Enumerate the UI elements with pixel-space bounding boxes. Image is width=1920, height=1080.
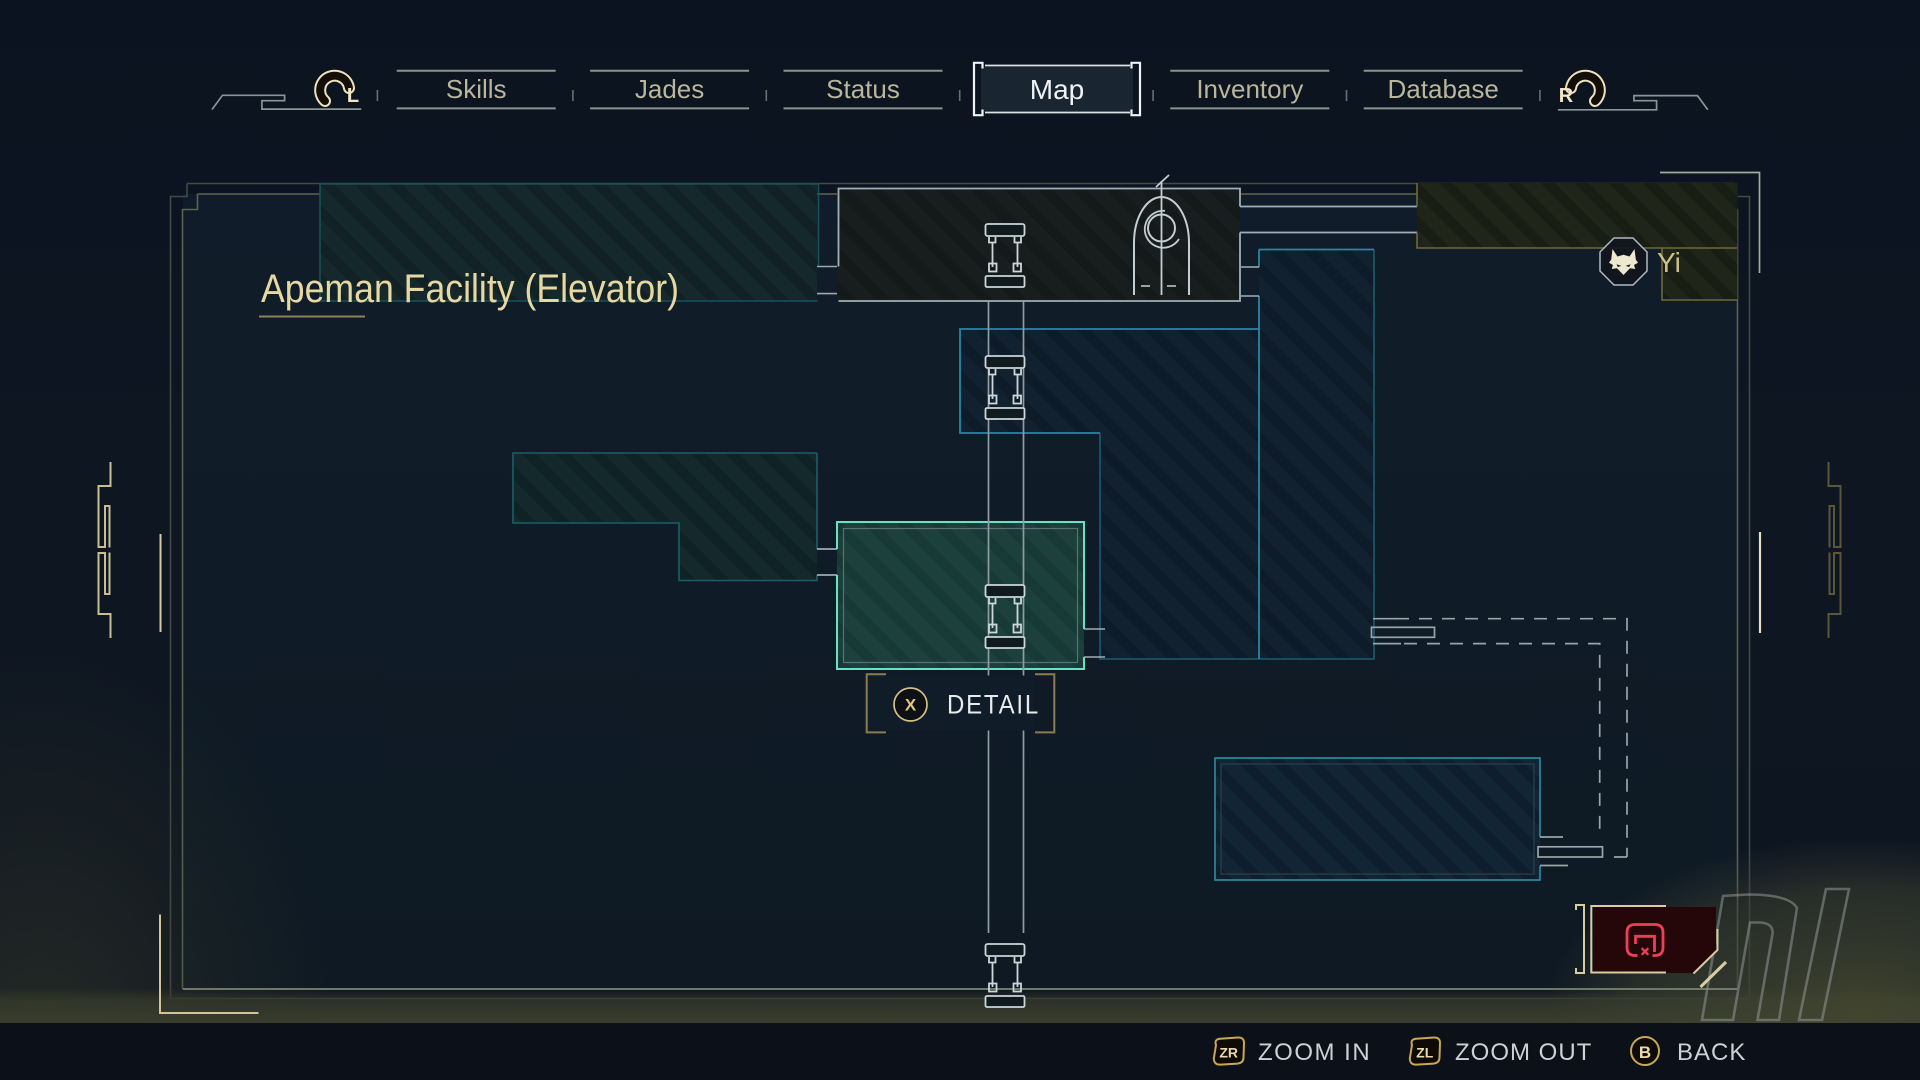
svg-text:R: R: [1559, 85, 1574, 107]
svg-text:DETAIL: DETAIL: [947, 690, 1040, 720]
svg-text:X: X: [905, 696, 917, 715]
svg-text:Map: Map: [1030, 74, 1084, 105]
svg-text:ZOOM OUT: ZOOM OUT: [1455, 1039, 1592, 1066]
svg-text:L: L: [347, 85, 359, 107]
svg-text:Jades: Jades: [635, 74, 704, 104]
svg-text:Inventory: Inventory: [1196, 74, 1303, 104]
svg-text:BACK: BACK: [1677, 1039, 1746, 1066]
svg-text:Skills: Skills: [446, 74, 507, 104]
svg-text:Status: Status: [826, 74, 900, 104]
svg-text:Database: Database: [1388, 74, 1499, 104]
svg-text:ZL: ZL: [1416, 1045, 1434, 1061]
svg-text:Yi: Yi: [1657, 247, 1681, 278]
svg-text:ZOOM IN: ZOOM IN: [1258, 1039, 1371, 1066]
svg-text:ZR: ZR: [1219, 1045, 1238, 1061]
svg-text:B: B: [1639, 1043, 1651, 1062]
svg-text:Apeman Facility (Elevator): Apeman Facility (Elevator): [261, 267, 679, 311]
